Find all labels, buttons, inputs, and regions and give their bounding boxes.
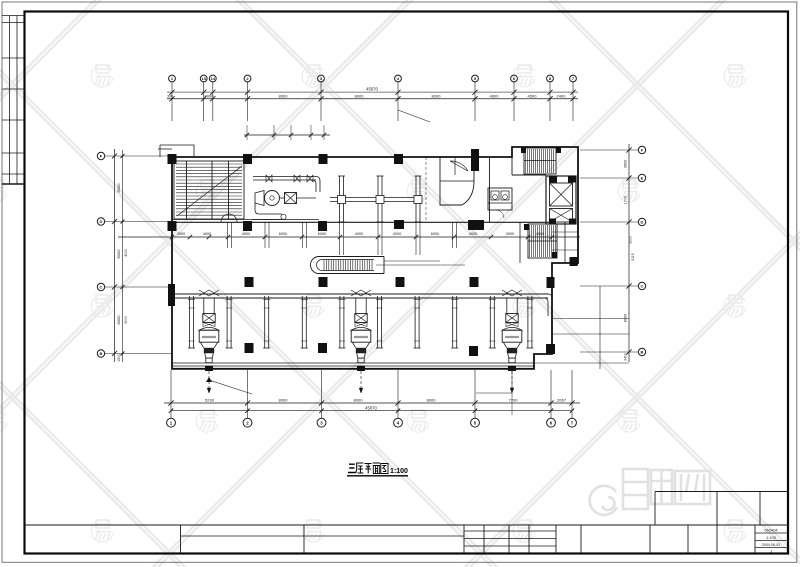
svg-text:4000: 4000 (203, 232, 211, 236)
svg-text:45070: 45070 (365, 405, 377, 410)
svg-text:3000: 3000 (629, 236, 633, 244)
svg-text:060404: 060404 (764, 527, 778, 532)
svg-text:6000: 6000 (279, 232, 287, 236)
svg-text:5115: 5115 (631, 253, 635, 260)
svg-text:2067: 2067 (557, 397, 567, 402)
svg-text:8000: 8000 (432, 93, 442, 98)
svg-text:1500: 1500 (117, 354, 121, 362)
svg-text:1:100: 1:100 (766, 535, 777, 540)
svg-text:13: 13 (201, 76, 206, 81)
svg-text:4800: 4800 (490, 93, 500, 98)
svg-text:D: D (100, 219, 103, 224)
svg-text:5230: 5230 (205, 397, 215, 402)
svg-text:B: B (641, 350, 644, 355)
svg-text:8000: 8000 (205, 93, 215, 98)
svg-text:2400: 2400 (557, 93, 567, 98)
svg-text:6000: 6000 (318, 232, 326, 236)
svg-text:1:100: 1:100 (390, 468, 408, 475)
svg-text:D: D (641, 220, 644, 225)
svg-text:3000: 3000 (124, 316, 128, 324)
svg-text:8000: 8000 (279, 397, 289, 402)
svg-text:3000: 3000 (506, 232, 514, 236)
svg-text:8000: 8000 (427, 397, 437, 402)
svg-text:4000: 4000 (393, 232, 401, 236)
svg-text:8000: 8000 (116, 183, 121, 193)
svg-text:3600: 3600 (624, 160, 628, 168)
svg-text:8000: 8000 (355, 93, 365, 98)
svg-text:45070: 45070 (366, 86, 378, 91)
svg-text:4000: 4000 (242, 232, 250, 236)
svg-text:8000: 8000 (279, 93, 289, 98)
svg-text:C: C (641, 284, 644, 289)
svg-text:J: J (770, 548, 772, 553)
svg-text:6000: 6000 (431, 232, 439, 236)
svg-text:8000: 8000 (116, 315, 121, 325)
svg-text:3900: 3900 (177, 232, 185, 236)
svg-text:2004-08-03: 2004-08-03 (762, 543, 780, 547)
svg-text:4000: 4000 (469, 232, 477, 236)
svg-text:C: C (100, 285, 103, 290)
svg-text:1770: 1770 (624, 196, 628, 204)
svg-text:4000: 4000 (124, 249, 128, 257)
svg-text:4500: 4500 (528, 93, 538, 98)
svg-text:B: B (100, 351, 103, 356)
svg-text:E: E (641, 176, 644, 181)
svg-text:8000: 8000 (624, 314, 628, 322)
svg-text:4000: 4000 (536, 232, 544, 236)
svg-text:8000: 8000 (116, 249, 121, 259)
svg-text:4000: 4000 (355, 232, 363, 236)
svg-text:14: 14 (211, 76, 216, 81)
svg-text:8000: 8000 (354, 397, 364, 402)
svg-text:7700: 7700 (509, 397, 519, 402)
svg-text:300: 300 (167, 94, 173, 98)
svg-text:2400: 2400 (624, 353, 628, 361)
